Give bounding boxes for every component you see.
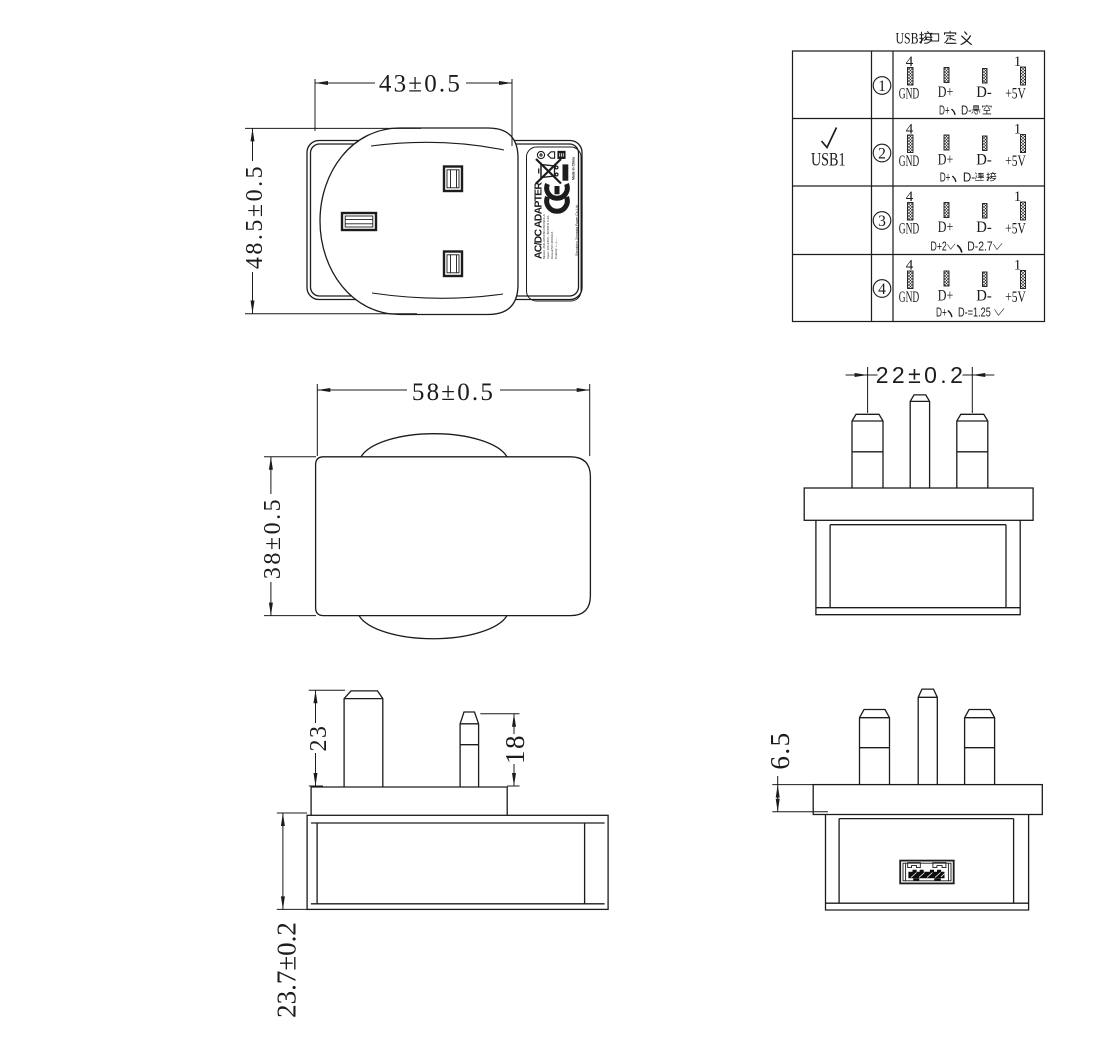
svg-text:+5V: +5V: [1005, 289, 1026, 306]
svg-text:GND: GND: [899, 289, 920, 306]
svg-text:38±0.5: 38±0.5: [260, 497, 286, 579]
svg-text:GND: GND: [899, 153, 920, 170]
svg-text:23: 23: [306, 725, 332, 752]
svg-text:+5V: +5V: [1005, 153, 1026, 170]
svg-text:+5V: +5V: [1005, 221, 1026, 238]
svg-text:22±0.2: 22±0.2: [876, 362, 967, 388]
svg-text:D-: D-: [963, 170, 975, 184]
svg-text:D-: D-: [976, 288, 992, 305]
svg-text:GND: GND: [899, 221, 920, 238]
svg-text:3: 3: [878, 213, 886, 230]
svg-text:Polarity: +--(.-- -: Polarity: +--(.-- -: [554, 237, 558, 259]
svg-text:D-=1.25: D-=1.25: [958, 305, 991, 319]
svg-text:1: 1: [878, 78, 886, 95]
svg-text:D+2: D+2: [931, 239, 947, 253]
svg-text:43±0.5: 43±0.5: [379, 71, 462, 98]
svg-text:23.7±0.2: 23.7±0.2: [272, 922, 302, 1018]
svg-text:D-: D-: [961, 103, 972, 117]
svg-text:GND: GND: [899, 86, 920, 103]
svg-text:Made in China: Made in China: [572, 157, 576, 180]
svg-text:D+: D+: [938, 288, 954, 305]
svg-text:Shenzhen Jihongda Power Co.,Lt: Shenzhen Jihongda Power Co.,Ltd: [575, 205, 579, 256]
svg-text:D+: D+: [939, 103, 950, 117]
svg-text:D-2.7: D-2.7: [967, 239, 992, 253]
svg-text:D-: D-: [976, 152, 992, 169]
svg-text:D-: D-: [976, 84, 992, 101]
svg-text:+5V: +5V: [1005, 86, 1026, 103]
svg-text:USB1: USB1: [811, 151, 846, 171]
svg-text:4: 4: [878, 281, 886, 298]
svg-text:D+: D+: [940, 170, 951, 184]
svg-text:18: 18: [500, 734, 530, 764]
svg-text:58±0.5: 58±0.5: [412, 379, 495, 406]
svg-text:2: 2: [878, 146, 886, 163]
svg-text:D+: D+: [938, 84, 954, 101]
svg-text:6.5: 6.5: [765, 731, 795, 769]
svg-text:D+: D+: [936, 305, 947, 319]
svg-text:48.5±0.5: 48.5±0.5: [242, 164, 268, 269]
svg-text:D+: D+: [938, 219, 954, 236]
svg-text:D+: D+: [938, 152, 954, 169]
svg-text:USB: USB: [896, 31, 919, 48]
svg-text:D-: D-: [976, 219, 992, 236]
